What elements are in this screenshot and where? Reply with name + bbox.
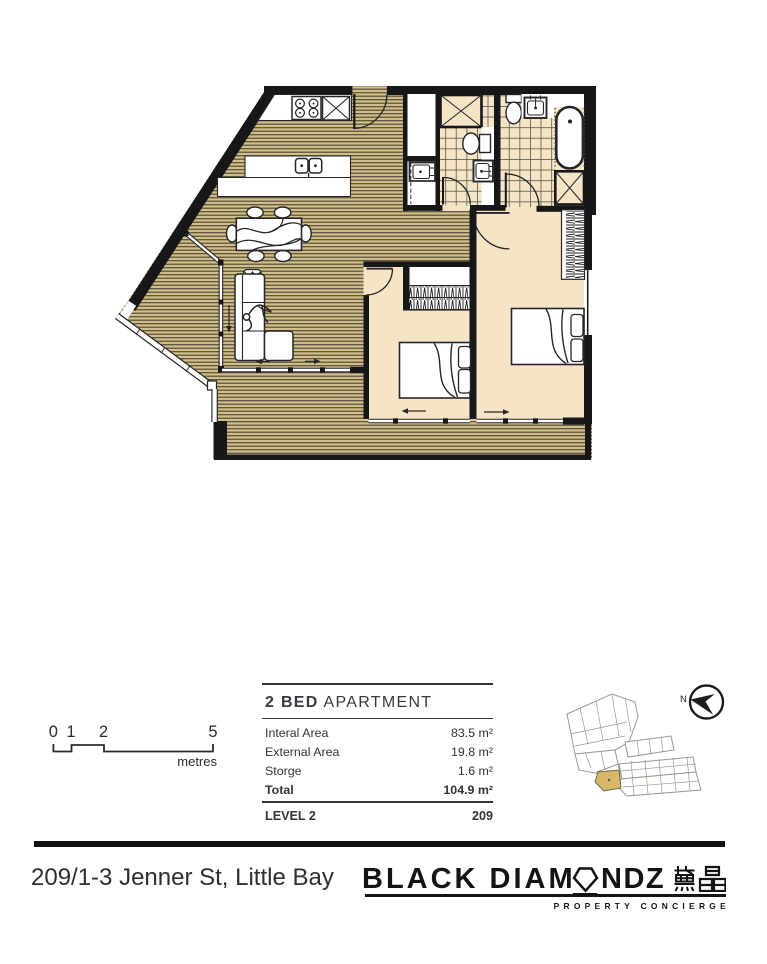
svg-text:N: N bbox=[680, 694, 687, 705]
